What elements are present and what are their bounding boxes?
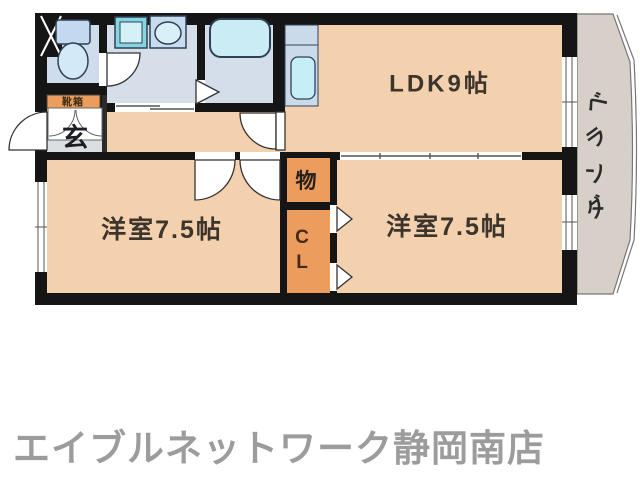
room-label-bedroom-right: 洋室7.5帖 xyxy=(386,207,508,243)
store-name-text: エイブルネットワーク静岡南店 xyxy=(13,418,545,472)
room-label-bedroom-left: 洋室7.5帖 xyxy=(101,210,223,246)
veranda-label-char: ン xyxy=(577,153,615,194)
closet-label-line1: C xyxy=(295,227,309,248)
entrance-label: 玄 xyxy=(62,118,88,155)
veranda-label-char: ダ xyxy=(577,188,615,229)
floor-plan-page: LDK9帖 洋室7.5帖 洋室7.5帖 物 C L 玄 靴箱 ベ ラ ン ダ エ… xyxy=(0,0,640,480)
veranda-label-char: ラ xyxy=(577,118,615,159)
veranda-label: ベ ラ ン ダ xyxy=(577,86,615,226)
floor-plan-drawing xyxy=(0,0,640,480)
veranda-label-char: ベ xyxy=(577,83,615,124)
closet-label-line2: L xyxy=(296,252,308,273)
shoe-cabinet-label: 靴箱 xyxy=(62,94,84,109)
closet-label: C L xyxy=(295,225,309,275)
room-label-ldk: LDK9帖 xyxy=(389,64,491,99)
storage-label: 物 xyxy=(296,165,317,195)
